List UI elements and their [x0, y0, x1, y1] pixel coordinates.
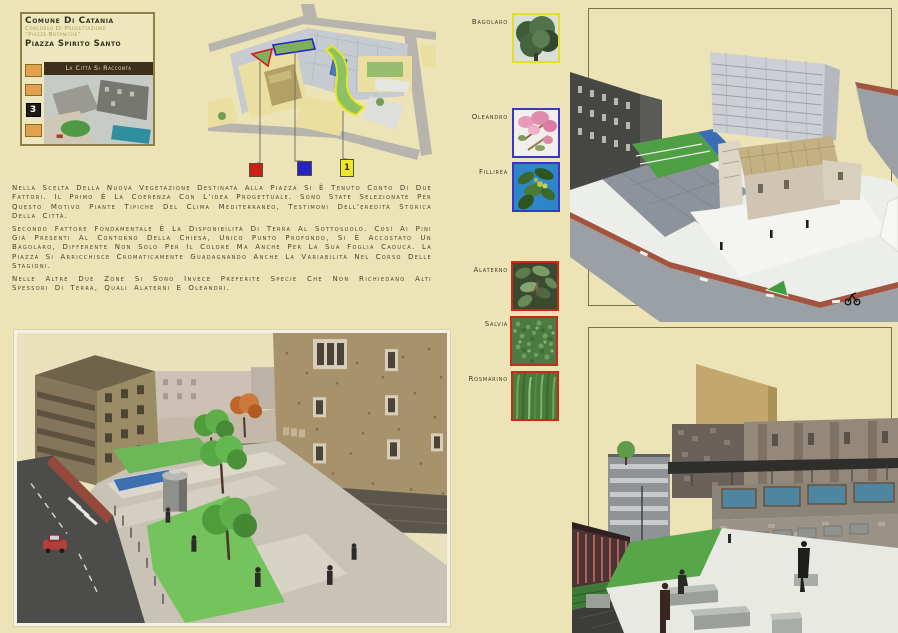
- plant-label-fillirea: Fillirea: [438, 168, 508, 176]
- rendering-eye-level-view: [572, 336, 898, 633]
- description-text-block: Nella scelta della nuova vegetazione des…: [12, 184, 432, 296]
- header-body: 3 La città si racconta: [22, 62, 153, 144]
- plant-photo-bagolaro: [512, 13, 560, 63]
- rendering-elevated-view: [17, 333, 447, 623]
- theme-banner: La città si racconta: [44, 62, 153, 75]
- description-paragraph-2: Secondo fattore fondamentale è la dispon…: [12, 225, 432, 272]
- plant-label-bagolaro: Bagolaro: [438, 18, 508, 26]
- legend-square-yellow: 1: [340, 159, 354, 177]
- left-modern-building: [608, 454, 670, 544]
- municipality-title: Comune di Catania: [25, 16, 150, 26]
- plant-photo-salvia: [510, 316, 558, 366]
- courtyard-green: [367, 62, 403, 77]
- orange-square-marker: [25, 124, 42, 137]
- project-title: Piazza Spirito Santo: [25, 39, 150, 49]
- plant-label-alaterno: Alaterno: [438, 266, 508, 274]
- description-paragraph-3: Nelle altre due zone si sono invece pref…: [12, 275, 432, 294]
- plant-photo-rosmarino: [511, 371, 559, 421]
- site-plan-map: [208, 4, 436, 186]
- competition-line2: “Piazze Botaniche”: [25, 32, 150, 38]
- legend-square-blue: [297, 161, 312, 176]
- kiosk: [162, 469, 188, 512]
- plant-photo-oleandro: [512, 108, 560, 158]
- modern-tower: [710, 52, 840, 144]
- plant-photo-fillirea: [512, 162, 560, 212]
- header-block: Comune di Catania Concorso di progettazi…: [20, 12, 155, 146]
- plant-label-salvia: Salvia: [438, 320, 508, 328]
- presentation-board: Comune di Catania Concorso di progettazi…: [0, 0, 898, 633]
- plant-photo-alaterno: [511, 261, 559, 311]
- legend-label: 1: [344, 163, 350, 173]
- header-marker-column: 3: [22, 62, 44, 144]
- header-thumbnail-rendering: [44, 75, 153, 144]
- right-historic-facades: [744, 418, 898, 486]
- legend-square-red: [249, 163, 263, 177]
- header-right: La città si racconta: [44, 62, 153, 144]
- tree: [617, 441, 635, 459]
- orange-square-marker: [25, 84, 42, 97]
- rendering-aerial-view: [570, 52, 898, 322]
- plant-label-oleandro: Oleandro: [438, 113, 508, 121]
- rendering-elevated-view-frame: [14, 330, 450, 626]
- orange-square-marker: [25, 64, 42, 77]
- description-paragraph-1: Nella scelta della nuova vegetazione des…: [12, 184, 432, 222]
- sheet-number-badge: 3: [26, 103, 41, 117]
